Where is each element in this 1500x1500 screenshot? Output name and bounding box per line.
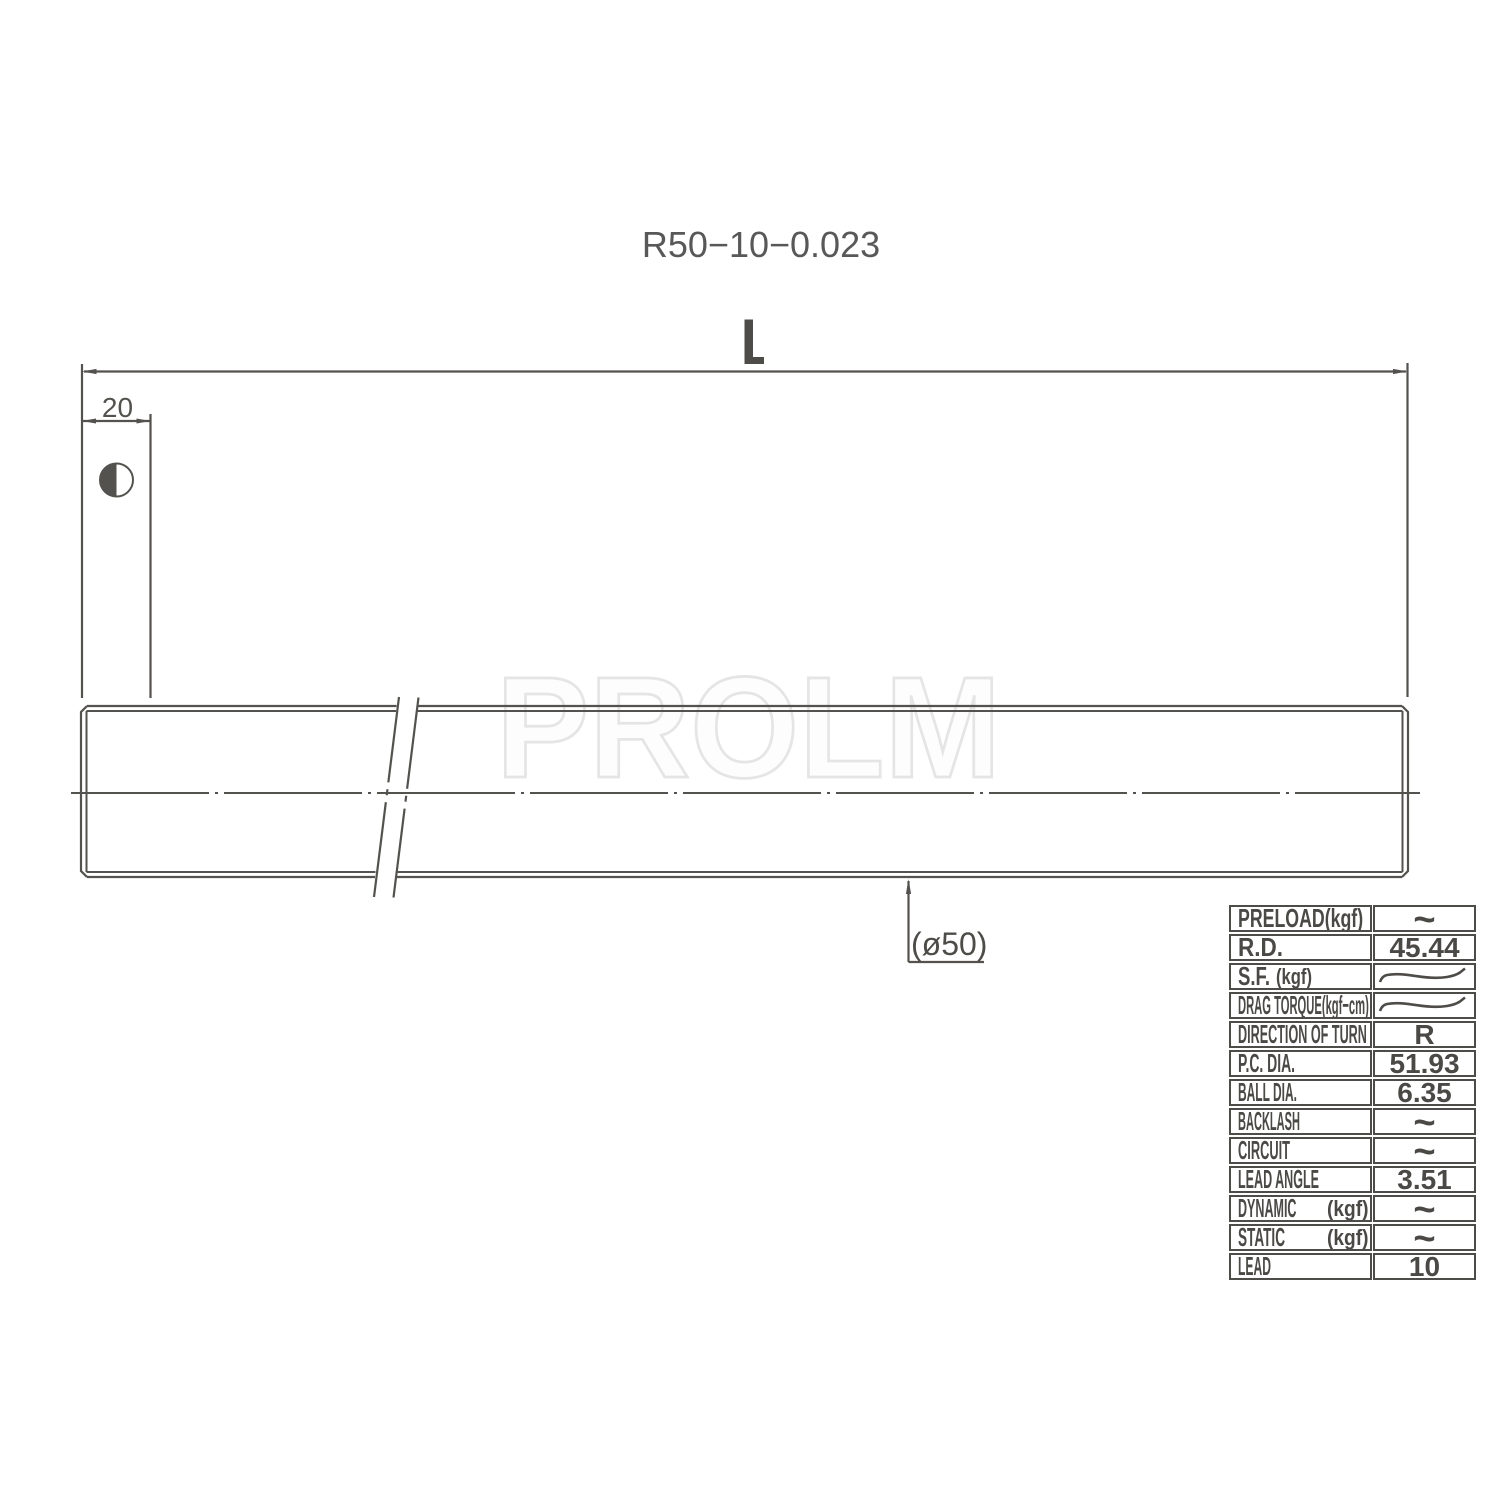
svg-text:20: 20: [102, 392, 133, 423]
svg-text:PROLM: PROLM: [496, 647, 1001, 808]
svg-text:(ø50): (ø50): [911, 926, 987, 962]
svg-text:R50−10−0.023: R50−10−0.023: [642, 224, 880, 265]
